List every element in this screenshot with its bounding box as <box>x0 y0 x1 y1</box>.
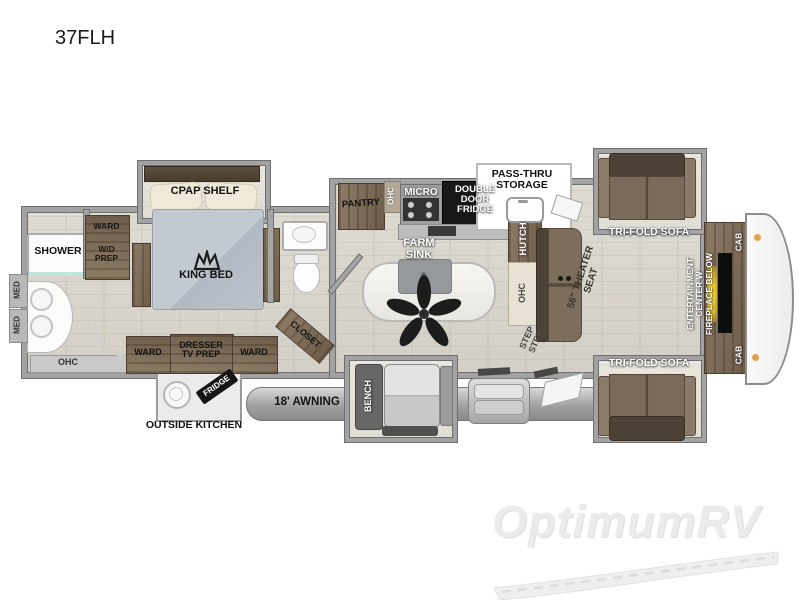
king-bed-label: KING BED <box>172 270 240 282</box>
farm-sink-label: FARM SINK <box>384 238 454 261</box>
sofa-top-back <box>609 153 685 178</box>
mid-bath-wall <box>268 210 273 302</box>
cpap-shelf <box>144 166 260 182</box>
pass-thru-label: PASS-THRU STORAGE <box>478 169 566 191</box>
dinette-pedestal <box>382 426 438 436</box>
wd-prep-label: W/D PREP <box>86 245 127 263</box>
page-title: 37FLH <box>55 28 115 49</box>
hutch-label: HUTCH <box>519 222 529 255</box>
shower-glass <box>29 272 89 276</box>
cupholder-2 <box>566 276 571 281</box>
entry-step-1 <box>474 384 524 399</box>
watermark-brand: OptimumRV <box>492 498 761 545</box>
cab-bottom-label: CAB <box>734 346 743 364</box>
sofa-bottom-back <box>609 416 685 441</box>
ward-top-label: WARD <box>86 222 127 231</box>
hutch-ohc-label: OHC <box>518 283 528 303</box>
dinette-bench-2 <box>440 366 453 426</box>
sofa-bottom-seat <box>609 374 685 418</box>
cap-hinge-top <box>754 234 761 241</box>
sofa-bottom-label: TRI-FOLD SOFA <box>594 358 704 369</box>
sofa-top-seat <box>609 176 685 220</box>
ceiling-fan-icon <box>382 272 466 356</box>
kitchen-ohc-label: OHC <box>388 187 397 205</box>
bedside-cabinet-left <box>132 243 151 307</box>
dresser-tv-label: DRESSER TV PREP <box>169 341 233 360</box>
cupholder-1 <box>558 276 563 281</box>
storage-hatch-handle <box>518 200 528 203</box>
floorplan-page: 37FLH OptimumRV 18' AWNING SHOWER MED ME… <box>0 0 800 600</box>
dinette-table <box>384 364 440 428</box>
entry-step-2 <box>474 400 524 415</box>
outside-sink-basin <box>169 387 183 401</box>
cpap-label: CPAP SHELF <box>155 186 255 198</box>
entertainment-label: ENTERTAINMENT CENTER W FIREPLACE BELOW <box>686 234 714 354</box>
med-label-2: MED <box>14 316 23 334</box>
tv <box>718 253 732 333</box>
watermark: OptimumRV <box>486 496 792 592</box>
cap-hinge-bottom <box>752 354 759 361</box>
bath-ohc-label: OHC <box>48 358 88 367</box>
vanity-sink-1 <box>30 288 53 311</box>
toilet-tank <box>294 254 319 264</box>
range-burners <box>403 198 439 221</box>
mid-bath-sink-basin <box>292 226 316 243</box>
cab-top-label: CAB <box>734 233 743 251</box>
counter-appliance <box>428 226 456 236</box>
toilet-bowl <box>293 260 320 293</box>
ward-right-label: WARD <box>233 348 275 357</box>
med-label-1: MED <box>14 281 23 299</box>
vanity-sink-2 <box>30 315 53 338</box>
watermark-road-icon <box>486 544 786 600</box>
outside-kitchen-label: OUTSIDE KITCHEN <box>144 420 244 431</box>
ward-left-label: WARD <box>127 348 169 357</box>
micro-label: MICRO <box>400 188 442 199</box>
shower-label: SHOWER <box>28 246 88 257</box>
bench-label: BENCH <box>364 380 374 412</box>
